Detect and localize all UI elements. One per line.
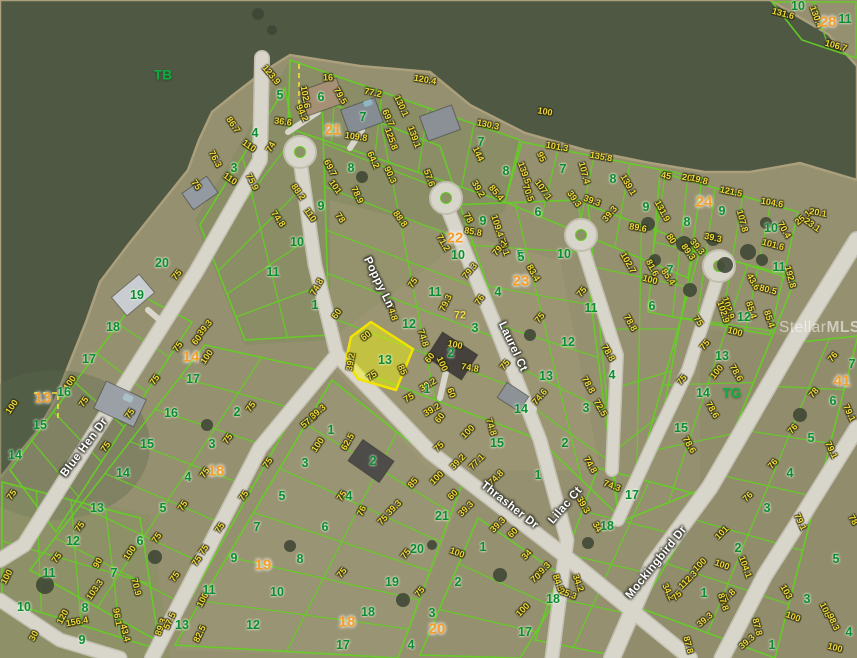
dimension-label: 62.5 bbox=[340, 432, 357, 452]
lot-number: 16 bbox=[164, 407, 178, 420]
dimension-label: 104.1 bbox=[737, 555, 753, 579]
dimension-label: 103 bbox=[778, 583, 793, 601]
dimension-label: 76 bbox=[356, 505, 368, 518]
lot-number: 9 bbox=[79, 634, 86, 647]
lot-number: 6 bbox=[318, 91, 325, 104]
dimension-label: 112.3 bbox=[677, 569, 699, 591]
dimension-label: 101.3 bbox=[545, 141, 569, 154]
dimension-label: 78.6 bbox=[728, 363, 745, 383]
block-number: 18 bbox=[208, 464, 225, 479]
dimension-label: 39.2 bbox=[449, 453, 468, 472]
lot-number: 3 bbox=[764, 502, 771, 515]
lot-number: 15 bbox=[490, 437, 504, 450]
lot-number: 11 bbox=[202, 584, 215, 597]
dimension-label: 30 bbox=[28, 629, 41, 642]
dimension-label: 75 bbox=[123, 407, 136, 420]
lot-number: 1 bbox=[769, 639, 776, 652]
dimension-label: 74.8 bbox=[484, 417, 498, 436]
dimension-label: 74.8 bbox=[582, 455, 599, 475]
dimension-label: 75 bbox=[413, 585, 426, 598]
lot-number: 4 bbox=[346, 490, 353, 503]
dimension-label: 100 bbox=[784, 610, 801, 624]
dimension-label: 70.4 bbox=[776, 220, 793, 240]
lot-number: 6 bbox=[535, 206, 542, 219]
lot-number: 12 bbox=[561, 336, 575, 349]
area-code-label: TB bbox=[154, 68, 172, 82]
lot-number: 8 bbox=[610, 173, 617, 186]
dimension-label: 100 bbox=[713, 558, 730, 572]
lot-number: 14 bbox=[514, 403, 528, 416]
lot-number: 7 bbox=[849, 358, 856, 371]
lot-number: 10 bbox=[17, 601, 31, 614]
dimension-label: 75 bbox=[213, 521, 226, 534]
dimension-label: 85 bbox=[406, 476, 419, 489]
dimension-label: 75 bbox=[335, 566, 348, 579]
lot-number: 8 bbox=[348, 162, 355, 175]
area-code-label: TG bbox=[723, 386, 742, 400]
lot-number: 17 bbox=[625, 489, 639, 502]
dimension-label: 120.4 bbox=[413, 74, 437, 87]
dimension-label: 80 bbox=[664, 232, 677, 245]
dimension-label: 79.3 bbox=[461, 261, 479, 280]
dimension-label: 88.2 bbox=[289, 182, 306, 202]
lot-number: 1 bbox=[535, 469, 542, 482]
lot-number: 12 bbox=[402, 318, 416, 331]
dimension-label: 39.2 bbox=[345, 353, 357, 372]
dimension-label: 78.8 bbox=[622, 313, 639, 333]
dimension-label: 131.9 bbox=[653, 199, 672, 223]
dimension-label: 85.4 bbox=[487, 183, 505, 202]
dimension-label: 69.7 bbox=[380, 108, 396, 128]
lot-number: 2 bbox=[370, 455, 377, 468]
dimension-label: 75 bbox=[148, 373, 161, 386]
lot-number: 18 bbox=[600, 520, 614, 533]
dimension-label: 75 bbox=[73, 520, 86, 533]
lot-number: 4 bbox=[252, 127, 259, 140]
dimension-label: 76 bbox=[786, 422, 799, 435]
lot-number: 13 bbox=[378, 354, 392, 367]
dimension-label: 78 bbox=[462, 211, 475, 224]
dimension-label: 60 bbox=[433, 411, 446, 424]
lot-number: 13 bbox=[175, 619, 189, 632]
lot-number: 5 bbox=[518, 251, 525, 264]
dimension-label: 139.1 bbox=[618, 173, 637, 197]
dimension-label: 43.4 bbox=[118, 623, 131, 642]
dimension-label: 102.7 bbox=[618, 251, 637, 275]
lot-number: 5 bbox=[277, 89, 284, 102]
dimension-label: 19.8 bbox=[689, 173, 708, 186]
dimension-label: 100 bbox=[709, 363, 726, 380]
dimension-label: 139.5 bbox=[516, 161, 532, 185]
dimension-label: 60 bbox=[330, 307, 343, 320]
dimension-label: 100 bbox=[4, 398, 20, 415]
dimension-label: 45 bbox=[660, 171, 671, 182]
street-name: Mockingbird Dr bbox=[624, 524, 690, 601]
dimension-label: 75 bbox=[168, 570, 181, 583]
dimension-label: 36.6 bbox=[274, 116, 293, 127]
lot-number: 6 bbox=[649, 300, 656, 313]
lot-number: 3 bbox=[302, 457, 309, 470]
dimension-label: 100 bbox=[0, 568, 15, 585]
dimension-label: 78.8 bbox=[600, 343, 617, 363]
dimension-label: 121.5 bbox=[719, 185, 743, 198]
dimension-label: 90 bbox=[92, 556, 105, 569]
lot-number: 11 bbox=[584, 302, 597, 315]
dimension-label: 85.4 bbox=[762, 309, 776, 328]
lot-number: 18 bbox=[361, 606, 375, 619]
lot-number: 8 bbox=[684, 216, 691, 229]
lot-number: 7 bbox=[254, 521, 261, 534]
dimension-label: 79.1 bbox=[823, 440, 839, 460]
lot-number: 1 bbox=[312, 299, 319, 312]
lot-number: 10 bbox=[764, 222, 778, 235]
dimension-label: 75 bbox=[197, 543, 210, 556]
dimension-label: 39.3 bbox=[565, 189, 582, 209]
lot-number: 14 bbox=[8, 449, 22, 462]
dimension-label: 75 bbox=[99, 440, 112, 453]
dimension-label: 109.4 bbox=[489, 214, 505, 238]
dimension-label: 75 bbox=[244, 400, 257, 413]
lot-number: 9 bbox=[643, 201, 650, 214]
dimension-label: 74.6 bbox=[531, 387, 549, 406]
lot-number: 7 bbox=[667, 264, 674, 277]
dimension-label: 75 bbox=[5, 488, 18, 501]
lot-number: 14 bbox=[696, 387, 710, 400]
lot-number: 7 bbox=[560, 163, 567, 176]
dimension-label: 135.8 bbox=[589, 151, 613, 164]
map-label-layer: 123.994.236.686.71107476.311075.975102.6… bbox=[0, 0, 857, 658]
dimension-label: 77.2 bbox=[363, 87, 382, 99]
dimension-label: 75 bbox=[176, 499, 189, 512]
lot-number: 11 bbox=[772, 261, 785, 274]
dimension-label: 75 bbox=[402, 392, 415, 405]
lot-number: 13 bbox=[90, 502, 104, 515]
dimension-label: 39.3 bbox=[457, 500, 476, 519]
dimension-label: 130.1 bbox=[392, 94, 410, 118]
block-number: 14 bbox=[183, 350, 200, 365]
lot-number: 11 bbox=[266, 266, 279, 279]
dimension-label: 110 bbox=[240, 138, 257, 154]
dimension-label: 74.8 bbox=[269, 209, 286, 229]
dimension-label: 75 bbox=[432, 440, 445, 453]
dimension-label: 75 bbox=[150, 531, 163, 544]
lot-number: 1 bbox=[701, 587, 708, 600]
lot-number: 8 bbox=[503, 165, 510, 178]
dimension-label: 106.7 bbox=[824, 39, 848, 54]
dimension-label: 100 bbox=[642, 274, 659, 287]
dimension-label: 74.8 bbox=[461, 362, 480, 374]
dimension-label: 75 bbox=[261, 456, 274, 469]
lot-number: 8 bbox=[82, 602, 89, 615]
parcel-map[interactable]: 123.994.236.686.71107476.311075.975102.6… bbox=[0, 0, 857, 658]
lot-number: 14 bbox=[116, 467, 130, 480]
lot-number: 10 bbox=[791, 0, 805, 12]
lot-number: 19 bbox=[130, 289, 144, 302]
dimension-label: 125.8 bbox=[383, 127, 399, 151]
dimension-label: 75 bbox=[698, 338, 711, 351]
dimension-label: 60 bbox=[506, 526, 519, 539]
dimension-label: 75 bbox=[77, 395, 90, 408]
dimension-label: 156.4 bbox=[65, 616, 89, 629]
lot-number: 20 bbox=[155, 257, 169, 270]
dimension-label: 100 bbox=[827, 642, 844, 655]
dimension-label: 75 bbox=[498, 358, 511, 371]
lot-number: 3 bbox=[583, 402, 590, 415]
lot-number: 3 bbox=[429, 607, 436, 620]
lot-number: 7 bbox=[478, 136, 485, 149]
dimension-label: 78 bbox=[807, 386, 820, 399]
dimension-label: 69.7 bbox=[322, 158, 338, 178]
lot-number: 13 bbox=[539, 370, 553, 383]
dimension-label: 78.8 bbox=[580, 375, 597, 395]
lot-number: 2 bbox=[448, 347, 455, 360]
lot-number: 15 bbox=[674, 422, 688, 435]
lot-number: 4 bbox=[185, 471, 192, 484]
lot-number: 8 bbox=[297, 553, 304, 566]
street-name: Thrasher Dr bbox=[478, 480, 540, 532]
block-number: 23 bbox=[513, 274, 530, 289]
lot-number: 1 bbox=[480, 541, 487, 554]
lot-number: 1 bbox=[328, 424, 335, 437]
lot-number: 4 bbox=[609, 369, 616, 382]
roof-lot-number: 72 bbox=[454, 311, 466, 322]
dimension-label: 70.9 bbox=[129, 577, 142, 596]
lot-number: 11 bbox=[838, 13, 851, 26]
lot-number: 2 bbox=[562, 437, 569, 450]
dimension-label: 75 bbox=[190, 554, 203, 567]
dimension-label: 39.3 bbox=[703, 232, 722, 244]
dimension-label: 74.8 bbox=[309, 277, 326, 297]
lot-number: 9 bbox=[480, 215, 487, 228]
lot-number: 18 bbox=[546, 593, 560, 606]
dimension-label: 57.6 bbox=[422, 168, 436, 188]
lot-number: 17 bbox=[518, 626, 532, 639]
lot-number: 17 bbox=[336, 639, 350, 652]
lot-number: 3 bbox=[472, 322, 479, 335]
lot-number: 6 bbox=[830, 395, 837, 408]
watermark-brand: Stellar bbox=[779, 319, 826, 336]
street-name: Poppy Ln bbox=[361, 255, 396, 310]
block-number: 41 bbox=[834, 374, 851, 389]
dimension-label: 74.8 bbox=[416, 328, 430, 347]
dimension-label: 88.8 bbox=[391, 209, 408, 229]
dimension-label: 101 bbox=[714, 525, 731, 542]
dimension-label: 75.9 bbox=[244, 172, 260, 192]
dimension-label: 75 bbox=[575, 285, 588, 298]
watermark-suffix: MLS bbox=[826, 319, 857, 336]
dimension-label: 78.6 bbox=[704, 400, 721, 420]
dimension-label: 100 bbox=[515, 602, 532, 619]
lot-number: 5 bbox=[279, 490, 286, 503]
dimension-label: 60 bbox=[359, 329, 372, 342]
lot-number: 12 bbox=[737, 311, 751, 324]
lot-number: 9 bbox=[231, 552, 238, 565]
lot-number: 17 bbox=[186, 373, 200, 386]
dimension-label: 100 bbox=[460, 424, 477, 441]
block-number: 18 bbox=[339, 615, 356, 630]
dimension-label: 79.1 bbox=[792, 512, 808, 532]
dimension-label: 101 bbox=[327, 178, 343, 195]
dimension-label: 75 bbox=[376, 513, 389, 526]
lot-number: 5 bbox=[833, 553, 840, 566]
dimension-label: 96.1 bbox=[111, 608, 123, 627]
block-number: 21 bbox=[325, 123, 342, 138]
lot-number: 9 bbox=[318, 200, 325, 213]
dimension-label: 75 bbox=[170, 268, 183, 281]
dimension-label: 75 bbox=[675, 373, 688, 386]
lot-number: 12 bbox=[246, 619, 260, 632]
dimension-label: 82.5 bbox=[192, 624, 208, 644]
dimension-label: 78 bbox=[333, 211, 346, 224]
lot-number: 6 bbox=[322, 521, 329, 534]
dimension-label: 107.8 bbox=[735, 209, 750, 233]
dimension-label: 86.7 bbox=[224, 115, 241, 135]
block-number: 22 bbox=[447, 231, 464, 246]
dimension-label: 75 bbox=[533, 311, 546, 324]
lot-number: 3 bbox=[231, 162, 238, 175]
dimension-label: 76 bbox=[473, 293, 486, 306]
lot-number: 4 bbox=[787, 467, 794, 480]
lot-number: 6 bbox=[137, 535, 144, 548]
dimension-label: 74.3 bbox=[602, 479, 622, 493]
dimension-label: 123.9 bbox=[260, 63, 281, 86]
block-number: 20 bbox=[429, 622, 446, 637]
lot-number: 21 bbox=[435, 510, 449, 523]
lot-number: 9 bbox=[719, 205, 726, 218]
block-number: 19 bbox=[255, 558, 272, 573]
lot-number: 20 bbox=[410, 543, 424, 556]
lot-number: 18 bbox=[106, 321, 120, 334]
dimension-label: 23.1 bbox=[802, 216, 822, 233]
dimension-label: 39.3 bbox=[737, 633, 756, 651]
dimension-label: 75 bbox=[406, 276, 419, 289]
lot-number: 1 bbox=[424, 383, 431, 396]
lot-number: 11 bbox=[428, 286, 441, 299]
lot-number: 2 bbox=[234, 406, 241, 419]
dimension-label: 39.3 bbox=[489, 516, 508, 535]
dimension-label: 78 bbox=[847, 513, 857, 526]
dimension-label: 75 bbox=[691, 314, 704, 327]
dimension-label: 75 bbox=[221, 432, 234, 445]
dimension-label: 103.3 bbox=[85, 578, 105, 602]
dimension-label: 75 bbox=[365, 369, 378, 382]
lot-number: 15 bbox=[140, 438, 154, 451]
dimension-label: 107.4 bbox=[577, 161, 592, 185]
lot-number: 5 bbox=[160, 502, 167, 515]
lot-number: 10 bbox=[557, 248, 571, 261]
dimension-label: 85.8 bbox=[464, 226, 483, 238]
lot-number: 2 bbox=[735, 542, 742, 555]
dimension-label: 70.5 bbox=[521, 183, 535, 203]
dimension-label: 130.3 bbox=[476, 118, 500, 131]
lot-number: 19 bbox=[385, 576, 399, 589]
dimension-label: 87.8 bbox=[681, 635, 694, 654]
lot-number: 15 bbox=[33, 419, 47, 432]
block-number: 13 bbox=[35, 391, 52, 406]
lot-number: 4 bbox=[846, 626, 853, 639]
block-number: 24 bbox=[696, 195, 713, 210]
block-number: 28 bbox=[820, 15, 837, 30]
dimension-label: 75 bbox=[670, 589, 683, 602]
dimension-label: 139.1 bbox=[406, 125, 422, 149]
dimension-label: 60 bbox=[446, 488, 459, 501]
dimension-label: 76 bbox=[826, 350, 839, 363]
dimension-label: 16 bbox=[323, 74, 333, 83]
dimension-label: 79.1 bbox=[841, 403, 857, 423]
lot-number: 4 bbox=[495, 286, 502, 299]
dimension-label: 100 bbox=[537, 106, 553, 117]
dimension-label: 100 bbox=[448, 546, 465, 560]
lot-number: 7 bbox=[111, 567, 118, 580]
dimension-label: 100 bbox=[727, 326, 744, 339]
lot-number: 5 bbox=[808, 432, 815, 445]
dimension-label: 74 bbox=[265, 140, 278, 153]
dimension-label: 89.6 bbox=[629, 222, 648, 234]
dimension-label: 60 bbox=[445, 387, 457, 399]
lot-number: 10 bbox=[451, 249, 465, 262]
dimension-label: 98.3 bbox=[825, 612, 841, 632]
dimension-label: 34 bbox=[520, 548, 533, 561]
dimension-label: 109.8 bbox=[344, 131, 368, 143]
dimension-label: 72.5 bbox=[592, 398, 609, 418]
dimension-label: 104.6 bbox=[760, 197, 784, 210]
lot-number: 10 bbox=[290, 236, 304, 249]
dimension-label: 80.5 bbox=[758, 283, 777, 296]
dimension-label: 76.3 bbox=[207, 149, 223, 169]
dimension-label: 76 bbox=[766, 457, 779, 470]
dimension-label: 100 bbox=[429, 470, 446, 487]
lot-number: 10 bbox=[270, 586, 284, 599]
dimension-label: 64.2 bbox=[365, 150, 381, 170]
dimension-label: 110 bbox=[302, 206, 318, 223]
lot-number: 3 bbox=[209, 438, 216, 451]
stellar-mls-watermark: StellarMLS bbox=[779, 319, 857, 337]
lot-number: 3 bbox=[804, 593, 811, 606]
dimension-label: 79.5 bbox=[332, 86, 349, 106]
lot-number: 2 bbox=[455, 576, 462, 589]
dimension-label: 76 bbox=[741, 490, 754, 503]
dimension-label: 100 bbox=[310, 436, 326, 453]
dimension-label: 39.3 bbox=[385, 499, 404, 518]
lot-number: 7 bbox=[360, 111, 367, 124]
dimension-label: 78.9 bbox=[349, 185, 365, 205]
lot-number: 17 bbox=[82, 353, 96, 366]
dimension-label: 39.3 bbox=[695, 611, 714, 629]
dimension-label: 77.1 bbox=[468, 453, 487, 472]
dimension-label: 39.3 bbox=[601, 204, 619, 223]
dimension-label: 101.6 bbox=[761, 238, 785, 253]
dimension-label: 75 bbox=[189, 178, 202, 191]
lot-number: 13 bbox=[715, 350, 729, 363]
lot-number: 4 bbox=[408, 639, 415, 652]
dimension-label: 95 bbox=[535, 151, 547, 164]
dimension-label: 85 bbox=[396, 364, 408, 377]
dimension-label: 78.6 bbox=[681, 435, 698, 455]
lot-number: 12 bbox=[66, 535, 80, 548]
dimension-label: 39.3 bbox=[582, 194, 602, 208]
dimension-label: 75 bbox=[237, 489, 250, 502]
dimension-label: 90.3 bbox=[382, 165, 398, 185]
dimension-label: 75 bbox=[50, 551, 63, 564]
dimension-label: 39.2 bbox=[470, 179, 487, 199]
lot-number: 11 bbox=[42, 567, 55, 580]
dimension-label: 100 bbox=[199, 348, 215, 365]
lot-number: 16 bbox=[57, 386, 71, 399]
